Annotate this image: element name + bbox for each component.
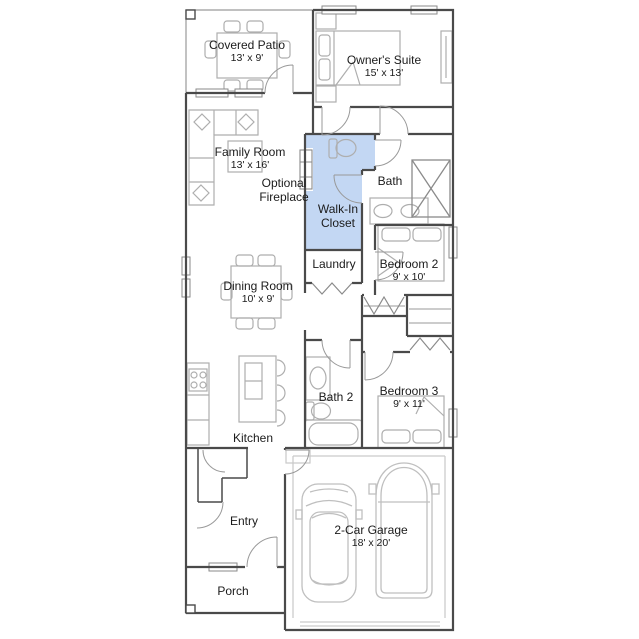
walls bbox=[186, 10, 453, 630]
label-bath: Bath bbox=[378, 175, 403, 188]
label-laundry: Laundry bbox=[312, 258, 355, 271]
label-porch: Porch bbox=[217, 585, 248, 598]
label-bedroom-3: Bedroom 3 9' x 11' bbox=[380, 385, 439, 410]
label-covered-patio: Covered Patio 13' x 9' bbox=[209, 39, 285, 64]
shower bbox=[412, 160, 450, 217]
label-dining-room: Dining Room 10' x 9' bbox=[223, 280, 292, 305]
entry-closet bbox=[198, 448, 247, 502]
label-entry: Entry bbox=[230, 515, 258, 528]
floor-plan: Covered Patio 13' x 9' Owner's Suite 15'… bbox=[0, 0, 639, 639]
label-kitchen: Kitchen bbox=[233, 432, 273, 445]
label-walk-in-closet: Walk-In Closet bbox=[309, 203, 367, 230]
label-bedroom-2: Bedroom 2 9' x 10' bbox=[380, 258, 439, 283]
floor-plan-drawing bbox=[0, 0, 639, 639]
label-bath-2: Bath 2 bbox=[319, 391, 354, 404]
label-optional-fireplace: Optional Fireplace bbox=[251, 177, 317, 204]
label-garage: 2-Car Garage 18' x 20' bbox=[334, 524, 407, 549]
label-owners-suite: Owner's Suite 15' x 13' bbox=[347, 54, 421, 79]
label-family-room: Family Room 13' x 16' bbox=[215, 146, 286, 171]
